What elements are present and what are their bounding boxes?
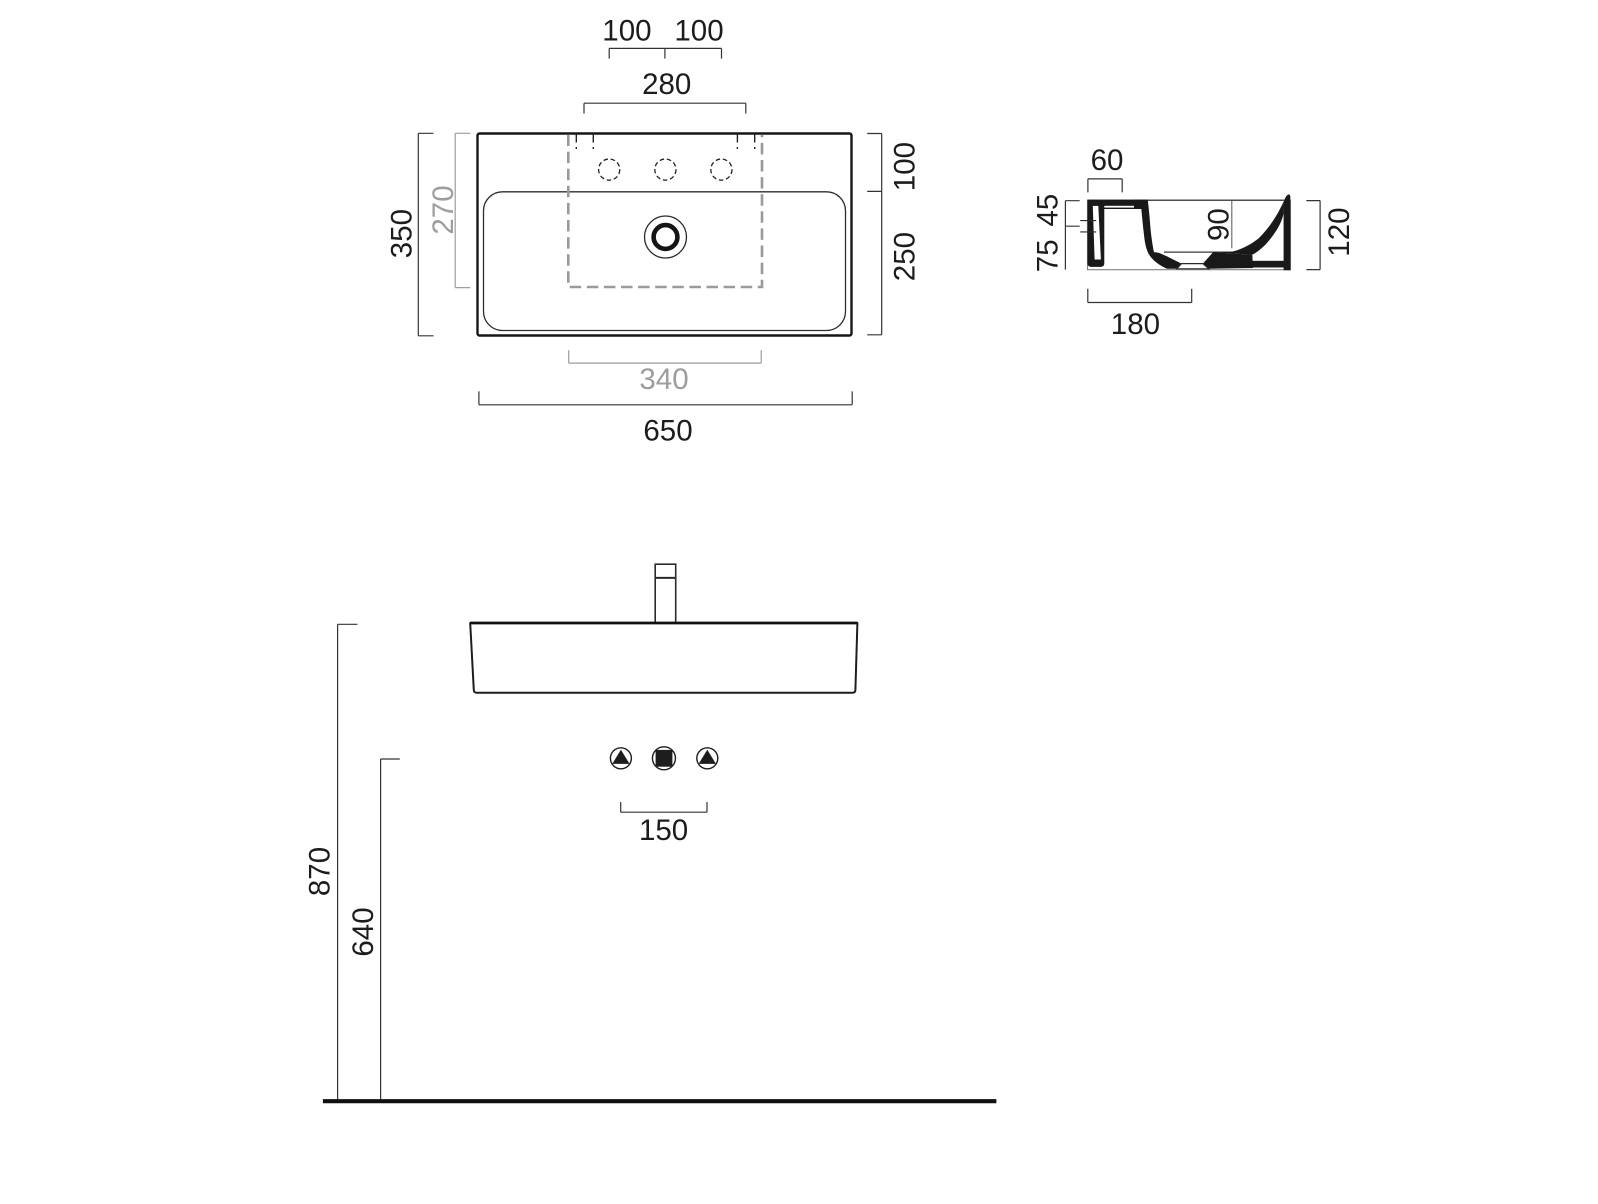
svg-text:870: 870 (303, 847, 336, 896)
svg-text:640: 640 (347, 907, 380, 956)
svg-text:100: 100 (602, 14, 651, 47)
svg-text:340: 340 (639, 363, 688, 396)
svg-text:60: 60 (1091, 144, 1124, 177)
svg-text:180: 180 (1111, 308, 1160, 341)
svg-text:350: 350 (386, 209, 419, 258)
svg-text:120: 120 (1323, 207, 1356, 256)
svg-text:90: 90 (1202, 208, 1235, 241)
svg-text:280: 280 (642, 68, 691, 101)
svg-text:270: 270 (427, 185, 460, 234)
svg-text:250: 250 (888, 232, 921, 281)
svg-text:150: 150 (639, 814, 688, 847)
svg-text:45: 45 (1032, 194, 1065, 227)
svg-text:650: 650 (643, 415, 692, 448)
svg-text:100: 100 (674, 14, 723, 47)
svg-text:100: 100 (889, 142, 922, 191)
svg-text:75: 75 (1032, 239, 1065, 272)
